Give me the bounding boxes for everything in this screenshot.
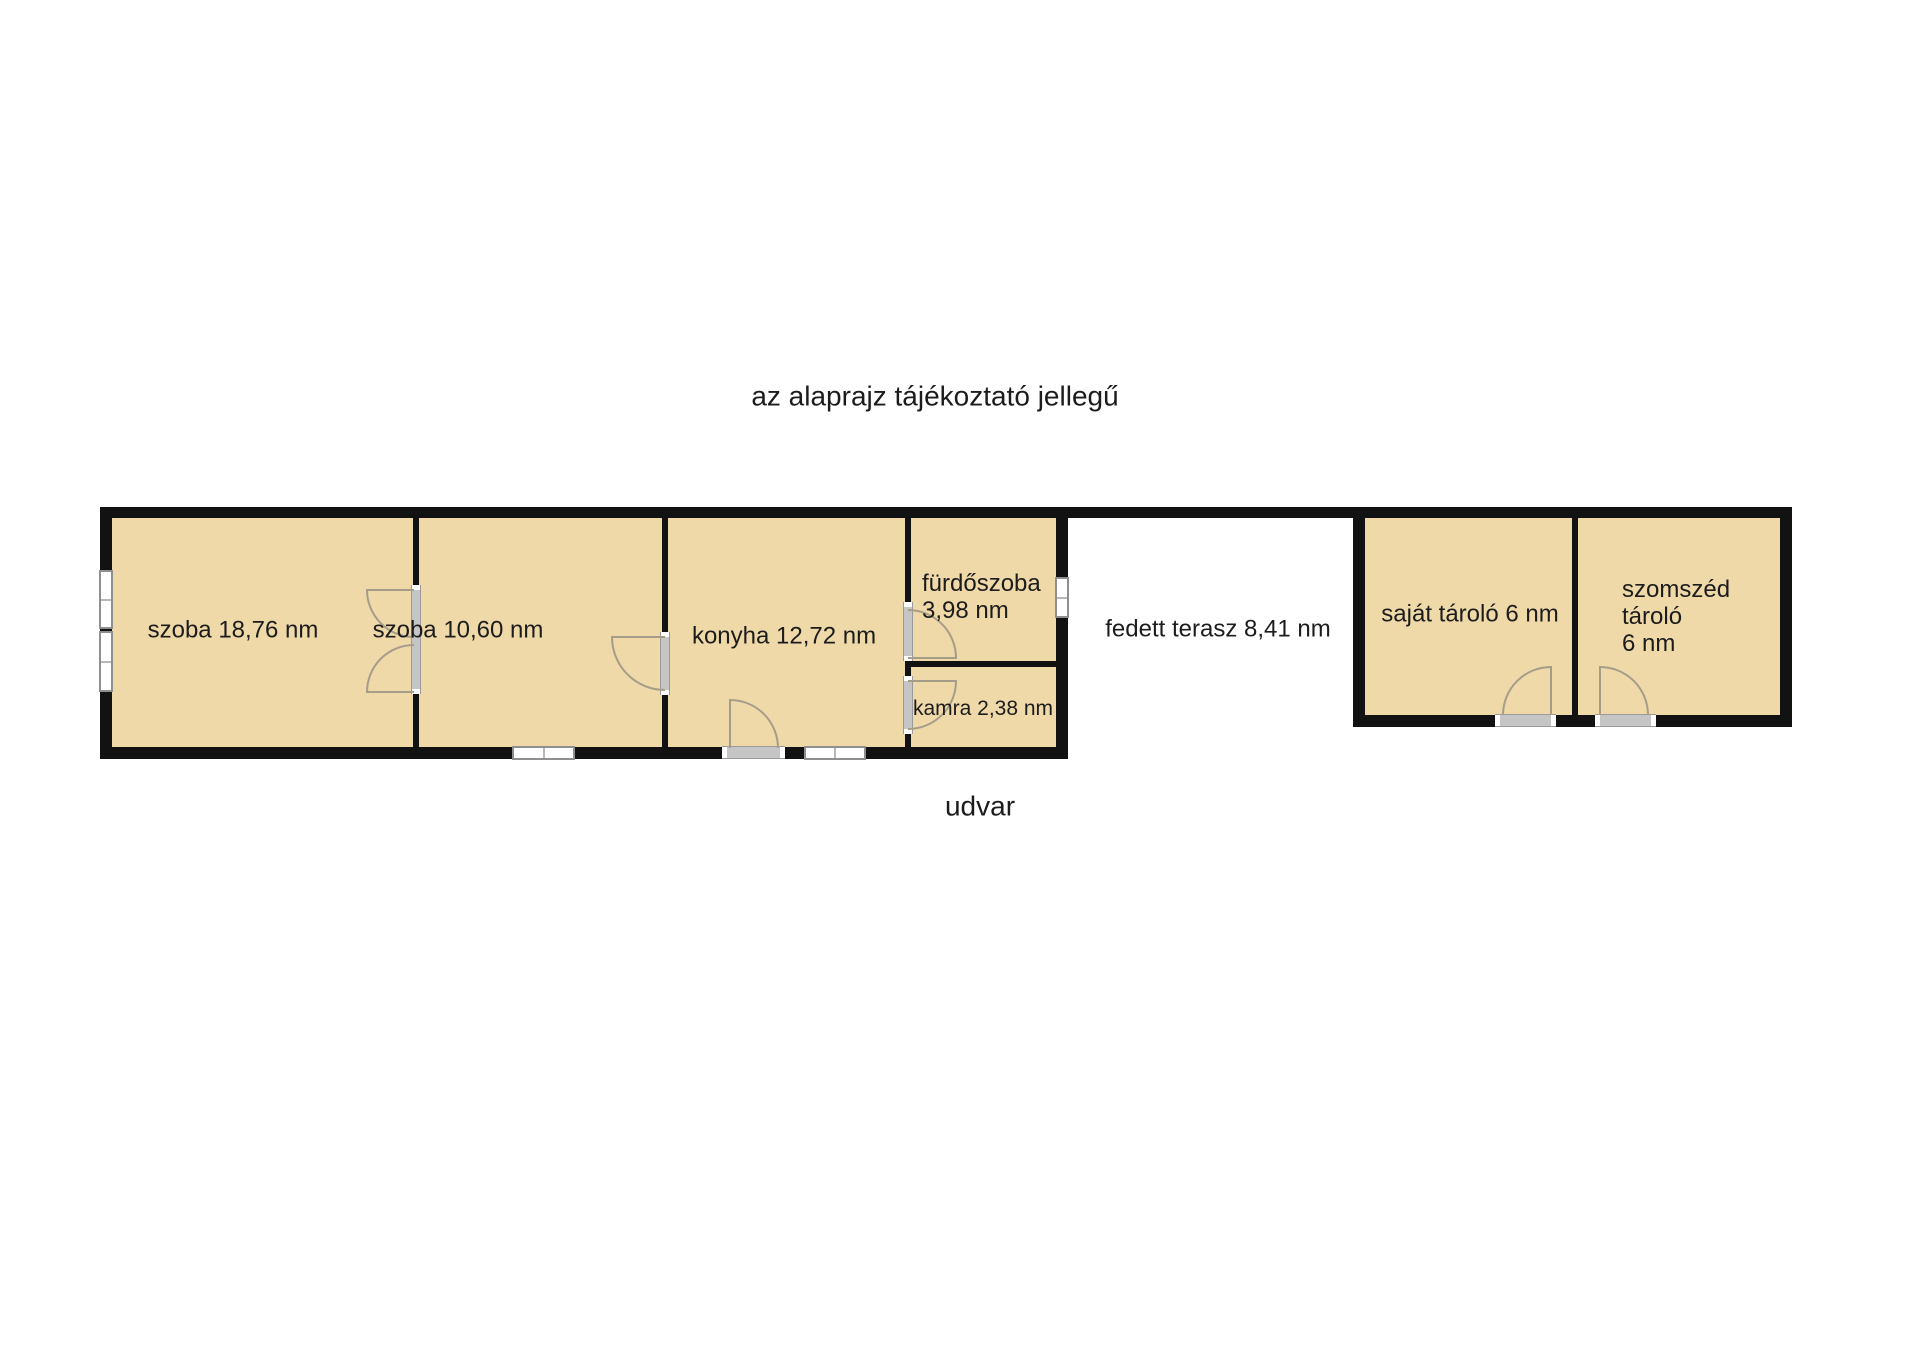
window-szoba2-bottom [512, 746, 575, 760]
door-furdoszoba [903, 602, 913, 661]
room-label-sajat-tarolo: saját tároló 6 nm [1381, 602, 1558, 629]
window-konyha-bottom [804, 746, 866, 760]
door-kamra [903, 676, 913, 734]
room-label-szomszed-tarolo: szomszéd tároló 6 nm [1622, 576, 1730, 657]
room-label-kamra: kamra 2,38 nm [913, 697, 1053, 721]
wall-storage-right [1780, 507, 1792, 727]
room-label-furdoszoba: fürdőszoba 3,98 nm [922, 571, 1041, 625]
floorplan-canvas: az alaprajz tájékoztató jellegű [0, 0, 1920, 1358]
room-label-furdoszoba-line2: 3,98 nm [922, 598, 1041, 625]
room-label-furdoszoba-line1: fürdőszoba [922, 571, 1041, 598]
window-szoba1-upper [99, 570, 113, 629]
room-label-terasz: fedett terasz 8,41 nm [1105, 617, 1330, 644]
room-label-szoba2: szoba 10,60 nm [373, 618, 544, 645]
room-label-szomszed-line2: tároló [1622, 603, 1730, 630]
window-szoba1-lower [99, 631, 113, 692]
wall-furdo-kamra [911, 661, 1056, 667]
wall-main-bottom [100, 747, 1068, 759]
door-szomszed-tarolo [1595, 714, 1656, 727]
room-label-szomszed-line3: 6 nm [1622, 630, 1730, 657]
wall-storage-left [1353, 507, 1365, 727]
room-label-konyha: konyha 12,72 nm [692, 624, 876, 651]
plan-disclaimer-title: az alaprajz tájékoztató jellegű [751, 380, 1118, 411]
door-konyha-udvar [722, 746, 785, 759]
window-furdoszoba-terrace [1055, 577, 1069, 618]
door-szoba2-konyha [660, 632, 670, 695]
door-sajat-tarolo [1495, 714, 1556, 727]
wall-storage-divider [1572, 518, 1578, 727]
room-label-szomszed-line1: szomszéd [1622, 576, 1730, 603]
wall-top [100, 507, 1792, 518]
room-label-szoba1: szoba 18,76 nm [148, 618, 319, 645]
wall-main-right [1056, 507, 1068, 759]
label-udvar: udvar [945, 790, 1015, 821]
